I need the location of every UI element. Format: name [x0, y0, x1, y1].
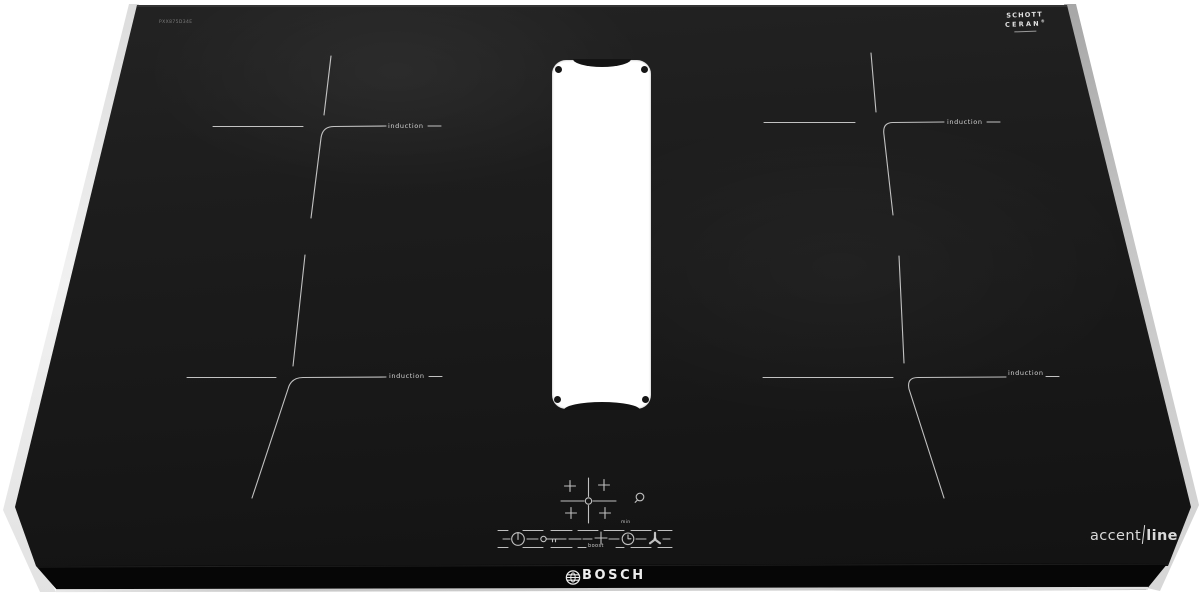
- induction-label-right-top: induction: [947, 118, 983, 126]
- cutout-corner-tab: [554, 396, 561, 403]
- induction-label-front-left-bottom: induction: [389, 372, 425, 380]
- accentline-logo: accentline: [1090, 525, 1178, 544]
- schott-ceran-logo: SCHOTT CERAN®: [1005, 10, 1045, 33]
- accentline-separator: [1142, 525, 1145, 544]
- induction-label-right-bottom: induction: [1008, 369, 1044, 377]
- bosch-logo: BOSCH: [560, 568, 646, 583]
- cutout-bottom-lip: [564, 402, 640, 410]
- cutout-corner-tab: [641, 66, 648, 73]
- ventilation-cutout: [552, 60, 651, 409]
- model-code: PXX875D34E: [159, 20, 193, 25]
- cutout-top-lip: [573, 59, 631, 67]
- schott-logo-line2: CERAN®: [1005, 18, 1045, 29]
- induction-label-front-left-top: induction: [388, 122, 424, 130]
- cutout-corner-tab: [642, 396, 649, 403]
- bosch-wordmark: BOSCH: [582, 568, 646, 583]
- accentline-part2: line: [1146, 528, 1178, 544]
- accentline-part1: accent: [1090, 528, 1141, 544]
- boost-label: boost: [588, 543, 604, 549]
- registered-mark: ®: [1041, 18, 1045, 23]
- cutout-corner-tab: [555, 66, 562, 73]
- product-photo-induction-cooktop: PXX875D34E SCHOTT CERAN® induction induc…: [0, 0, 1200, 594]
- min-label: min: [621, 520, 630, 525]
